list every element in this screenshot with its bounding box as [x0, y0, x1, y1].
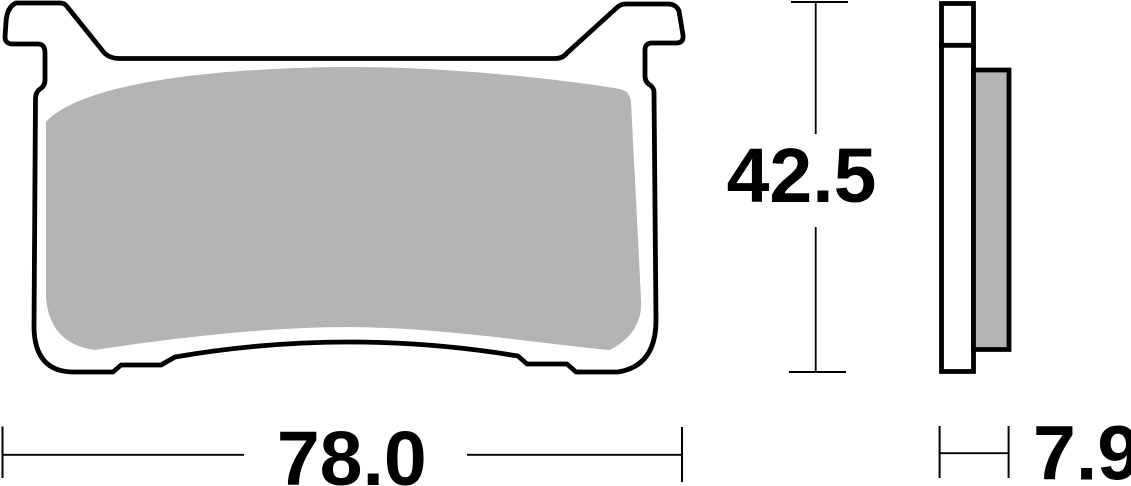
svg-text:42.5: 42.5 [727, 133, 877, 219]
svg-text:7.9: 7.9 [1033, 411, 1131, 486]
svg-text:78.0: 78.0 [277, 416, 427, 486]
